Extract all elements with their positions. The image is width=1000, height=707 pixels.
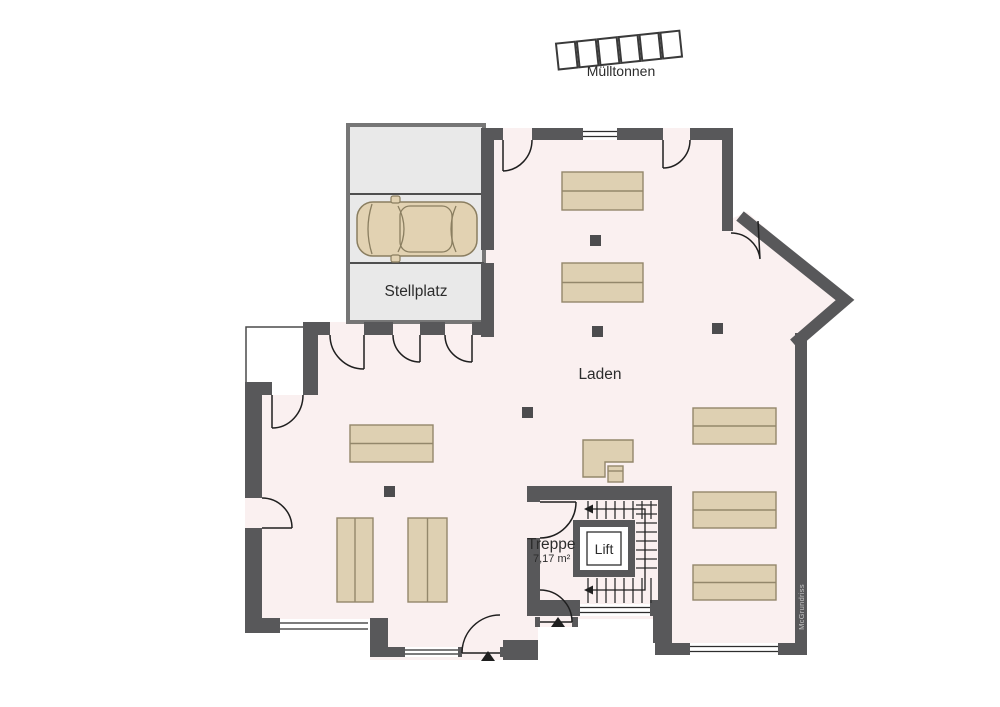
label-lift: Lift [595, 541, 614, 557]
label-muelltonnen: Mülltonnen [587, 63, 656, 79]
label-treppe-area: 7,17 m² [533, 553, 571, 565]
label-laden: Laden [578, 366, 621, 383]
label-treppe: Treppe [527, 536, 576, 553]
car-icon [357, 196, 477, 262]
floor-plan-canvas: Mülltonnen Stellplatz Laden Treppe 7,17 … [0, 0, 1000, 707]
floor-plan: Mülltonnen Stellplatz Laden Treppe 7,17 … [0, 0, 1000, 707]
watermark-text: McGrundriss [797, 584, 806, 630]
label-stellplatz: Stellplatz [385, 283, 448, 300]
